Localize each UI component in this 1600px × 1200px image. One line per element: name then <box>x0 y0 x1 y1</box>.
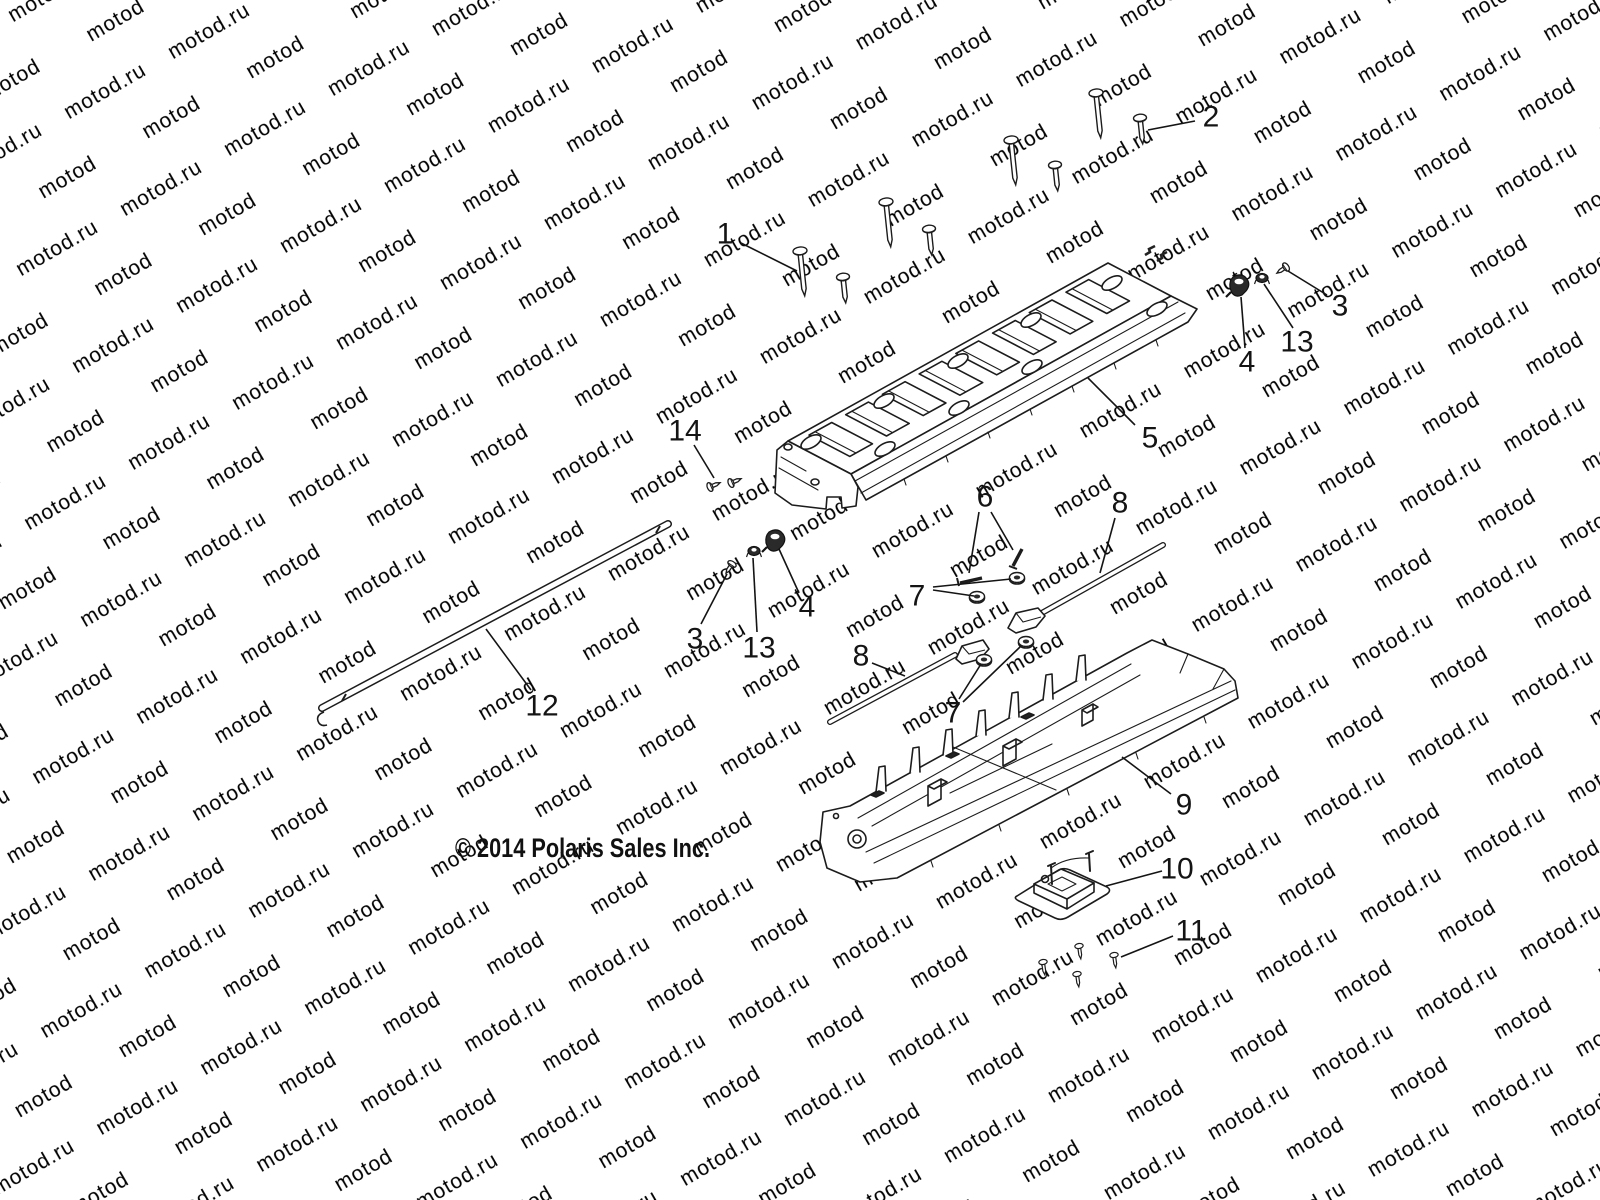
callout-4-label: 4 <box>799 591 816 624</box>
callout-4-label: 4 <box>1239 346 1256 379</box>
part-7-nut <box>977 655 992 667</box>
part-7-nut <box>1010 573 1025 585</box>
callout-7-label: 7 <box>909 580 926 613</box>
callout-2-label: 2 <box>1203 101 1220 134</box>
callout-6-label: 6 <box>977 481 994 514</box>
callout-5-label: 5 <box>1142 422 1159 455</box>
callout-3-label: 3 <box>687 623 704 656</box>
callout-8-label: 8 <box>1112 487 1129 520</box>
callout-13-label: 13 <box>1280 326 1313 359</box>
part-7-nut <box>970 592 985 604</box>
copyright-text: © 2014 Polaris Sales Inc. <box>455 833 710 863</box>
callout-1-label: 1 <box>717 218 734 251</box>
callout-12-label: 12 <box>525 690 558 723</box>
callout-9-label: 9 <box>1176 789 1193 822</box>
diagram-page: motod.ru motod.ru <box>0 0 1600 1200</box>
callout-13-label: 13 <box>742 632 775 665</box>
parts-diagram: motod.ru motod.ru <box>0 0 1600 1200</box>
callout-10-label: 10 <box>1160 853 1193 886</box>
callout-3-label: 3 <box>1332 290 1349 323</box>
callout-11-label: 11 <box>1175 915 1206 948</box>
callout-14-label: 14 <box>668 415 701 448</box>
callout-8-label: 8 <box>853 640 870 673</box>
callout-7-label: 7 <box>945 697 962 730</box>
